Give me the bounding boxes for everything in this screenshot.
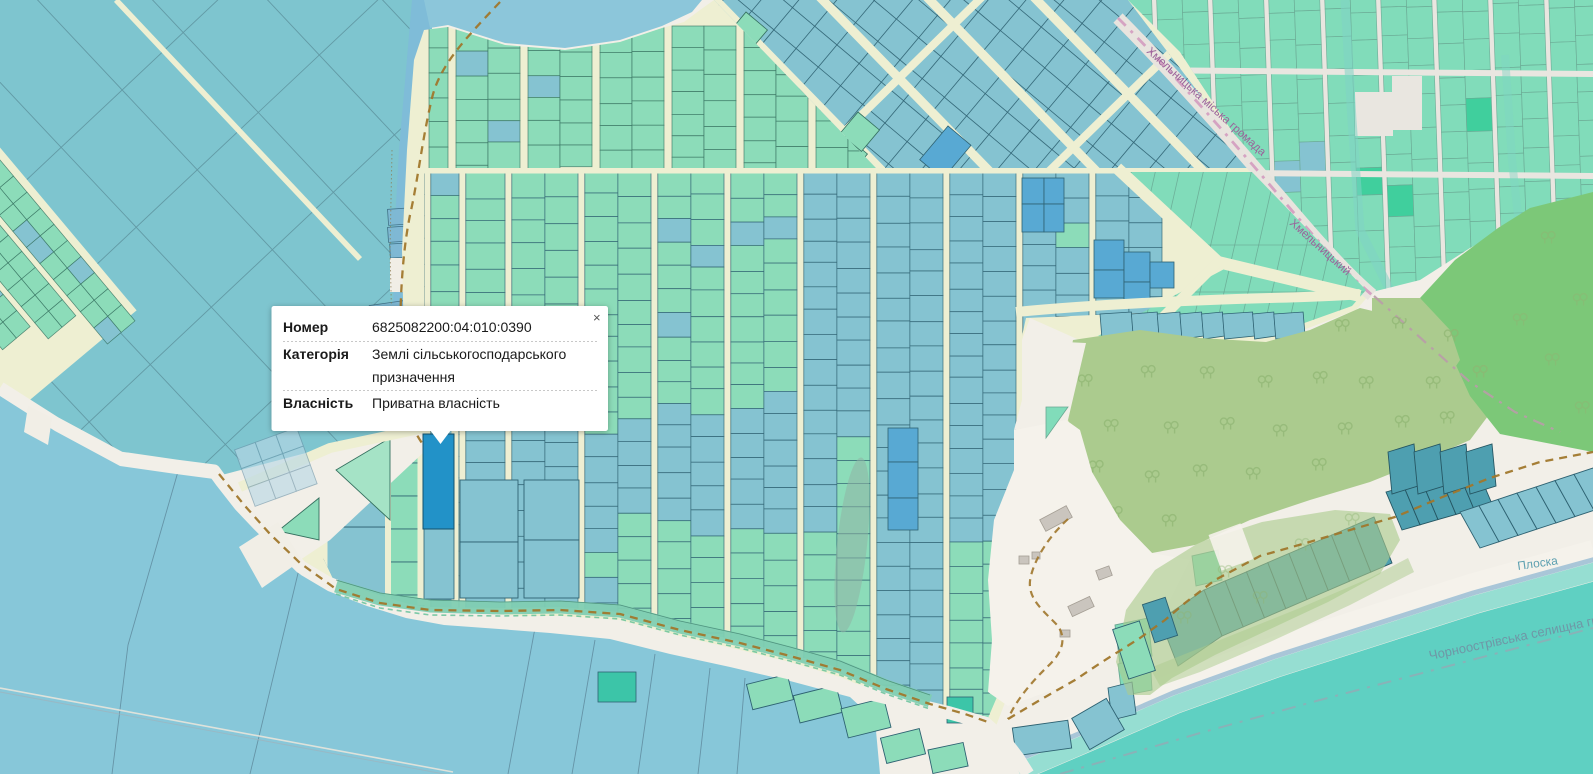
svg-text:Категорія: Категорія: [283, 346, 349, 362]
svg-text:6825082200:04:010:0390: 6825082200:04:010:0390: [372, 319, 532, 335]
svg-text:призначення: призначення: [372, 369, 455, 385]
svg-text:Землі сільськогосподарського: Землі сільськогосподарського: [372, 346, 567, 362]
svg-text:Номер: Номер: [283, 319, 328, 335]
svg-text:Приватна власність: Приватна власність: [372, 395, 500, 411]
svg-text:Власність: Власність: [283, 395, 354, 411]
svg-text:×: ×: [593, 310, 601, 325]
